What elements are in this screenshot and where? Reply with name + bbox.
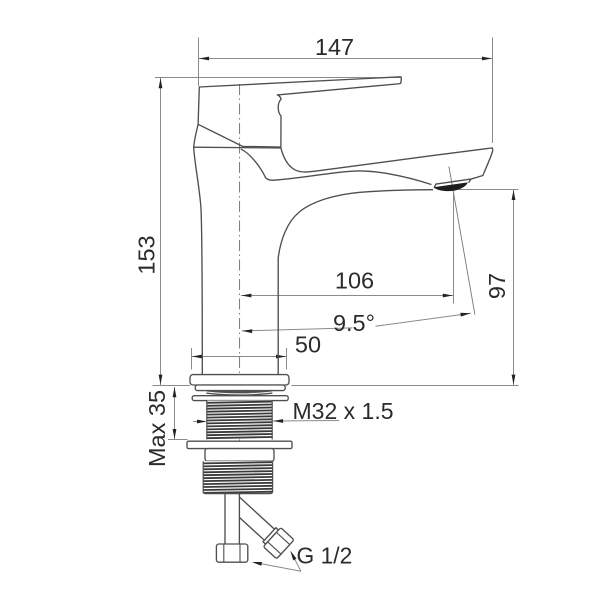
svg-text:9.5°: 9.5° bbox=[333, 310, 375, 336]
svg-text:Max 35: Max 35 bbox=[144, 390, 170, 467]
svg-text:G 1/2: G 1/2 bbox=[297, 543, 353, 569]
svg-text:M32 x 1.5: M32 x 1.5 bbox=[293, 398, 394, 424]
svg-text:97: 97 bbox=[484, 273, 510, 299]
svg-text:50: 50 bbox=[295, 332, 321, 358]
svg-text:153: 153 bbox=[134, 235, 160, 274]
svg-text:147: 147 bbox=[315, 34, 354, 60]
svg-text:106: 106 bbox=[335, 268, 374, 294]
